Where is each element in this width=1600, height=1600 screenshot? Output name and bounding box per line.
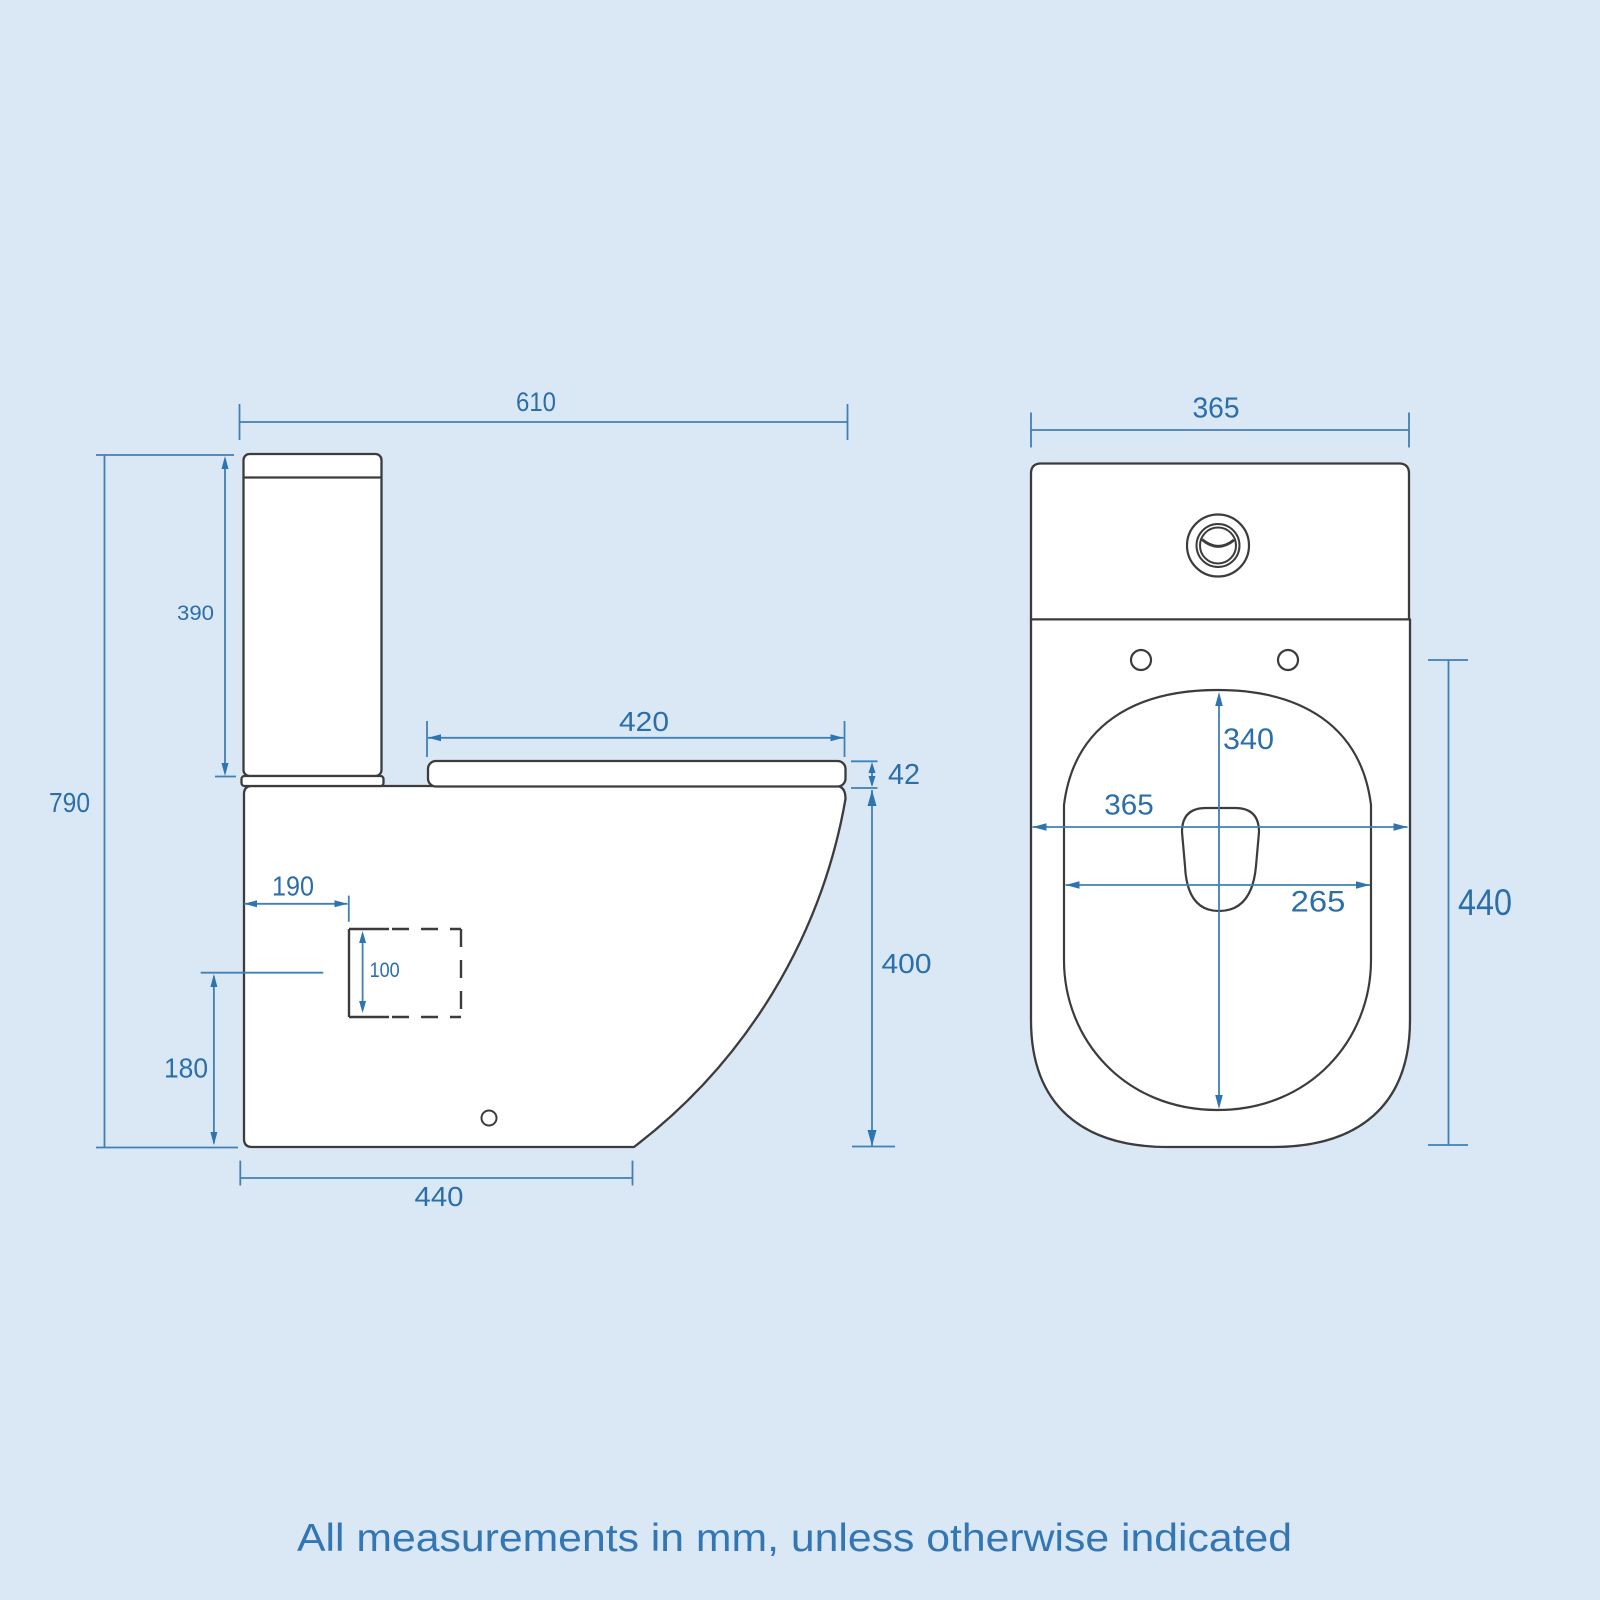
svg-text:790: 790 xyxy=(49,787,90,818)
svg-text:265: 265 xyxy=(1291,885,1346,918)
svg-text:440: 440 xyxy=(415,1181,464,1212)
svg-text:400: 400 xyxy=(882,948,932,979)
svg-text:All measurements in mm, unless: All measurements in mm, unless otherwise… xyxy=(297,1517,1292,1560)
svg-text:365: 365 xyxy=(1104,790,1153,822)
svg-text:190: 190 xyxy=(272,870,314,901)
svg-text:42: 42 xyxy=(888,759,920,791)
svg-text:440: 440 xyxy=(1458,882,1512,923)
svg-text:180: 180 xyxy=(164,1053,208,1084)
svg-text:340: 340 xyxy=(1223,723,1274,756)
svg-text:610: 610 xyxy=(516,387,556,417)
svg-text:100: 100 xyxy=(370,959,400,982)
svg-text:365: 365 xyxy=(1193,393,1240,425)
svg-text:390: 390 xyxy=(177,601,214,625)
svg-text:420: 420 xyxy=(619,706,669,737)
